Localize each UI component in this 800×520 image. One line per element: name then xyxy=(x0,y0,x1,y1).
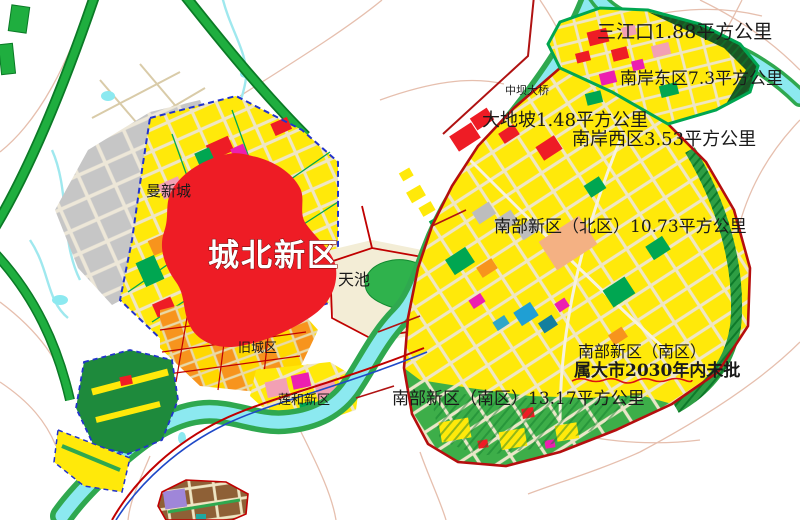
label-nanbu-south: 南部新区（南区）13.17平方公里 xyxy=(392,389,645,409)
label-lianhe: 莲和新区 xyxy=(278,392,330,408)
zone-bottomleft-green xyxy=(76,350,178,454)
label-nanan-east: 南岸东区7.3平方公里 xyxy=(620,69,783,89)
label-note-line1: 南部新区（南区） xyxy=(578,342,706,361)
planning-map[interactable]: 三江口1.88平方公里 南岸东区7.3平方公里 中坝大桥 大地坡1.48平方公里… xyxy=(0,0,800,520)
label-zhongba-bridge: 中坝大桥 xyxy=(505,83,549,97)
label-dadipo: 大地坡1.48平方公里 xyxy=(482,110,648,131)
label-manxincheng: 曼新城 xyxy=(146,182,191,200)
label-tianchi: 天池 xyxy=(338,270,370,289)
map-canvas[interactable]: 三江口1.88平方公里 南岸东区7.3平方公里 中坝大桥 大地坡1.48平方公里… xyxy=(0,0,800,520)
label-note-line2: 属大市2030年内未批 xyxy=(574,360,740,381)
label-chengbei: 城北新区 xyxy=(208,238,340,273)
label-nanbu-north: 南部新区（北区）10.73平方公里 xyxy=(494,217,747,237)
label-sanjiangkou: 三江口1.88平方公里 xyxy=(597,21,772,43)
label-nanan-west: 南岸西区3.53平方公里 xyxy=(572,129,756,150)
label-old-town: 旧城区 xyxy=(238,341,277,356)
